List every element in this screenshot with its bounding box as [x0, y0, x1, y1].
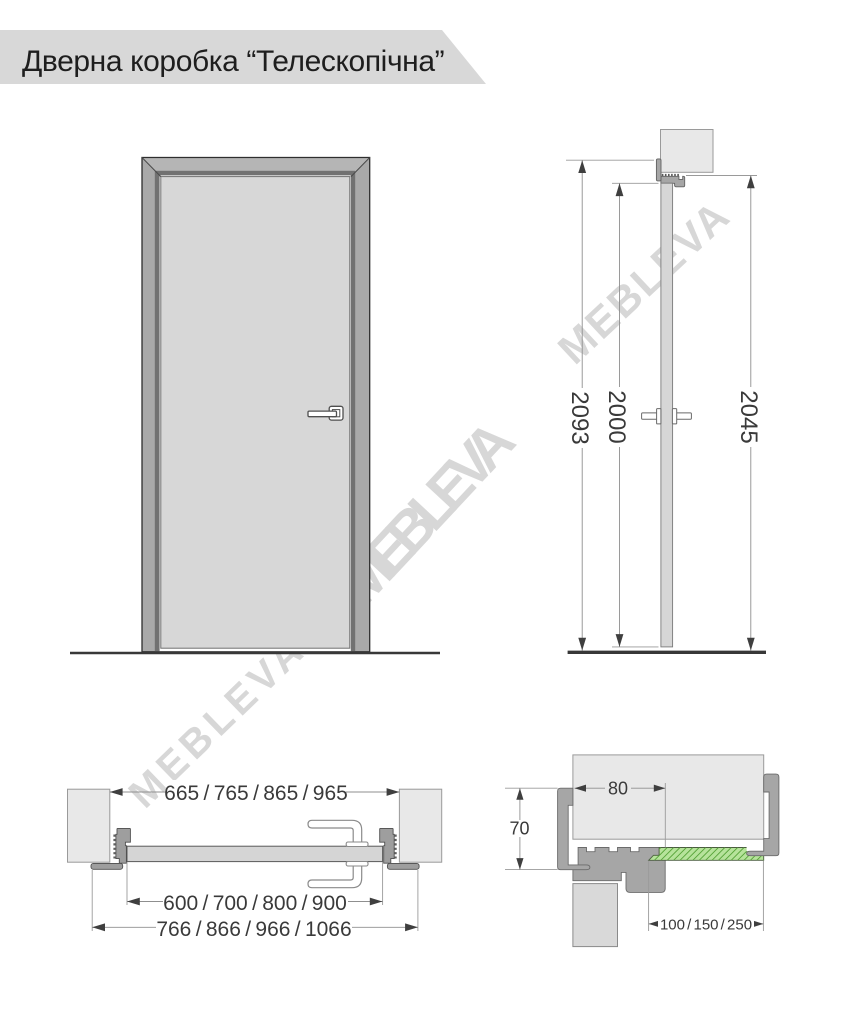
svg-text:Дверна коробка “Телескопічна”: Дверна коробка “Телескопічна”: [22, 45, 444, 78]
svg-text:2045: 2045: [735, 390, 762, 443]
svg-text:2093: 2093: [566, 391, 593, 444]
svg-text:70: 70: [509, 819, 529, 839]
svg-text:600 / 700 / 800 / 900: 600 / 700 / 800 / 900: [163, 892, 347, 915]
svg-text:766 / 866 / 966 / 1066: 766 / 866 / 966 / 1066: [156, 918, 351, 941]
svg-text:665 / 765 / 865 / 965: 665 / 765 / 865 / 965: [164, 782, 348, 805]
svg-text:MEBLEVA: MEBLEVA: [549, 191, 739, 373]
svg-text:100 / 150 / 250: 100 / 150 / 250: [660, 917, 752, 934]
svg-text:2000: 2000: [603, 390, 630, 443]
svg-text:80: 80: [608, 779, 628, 799]
